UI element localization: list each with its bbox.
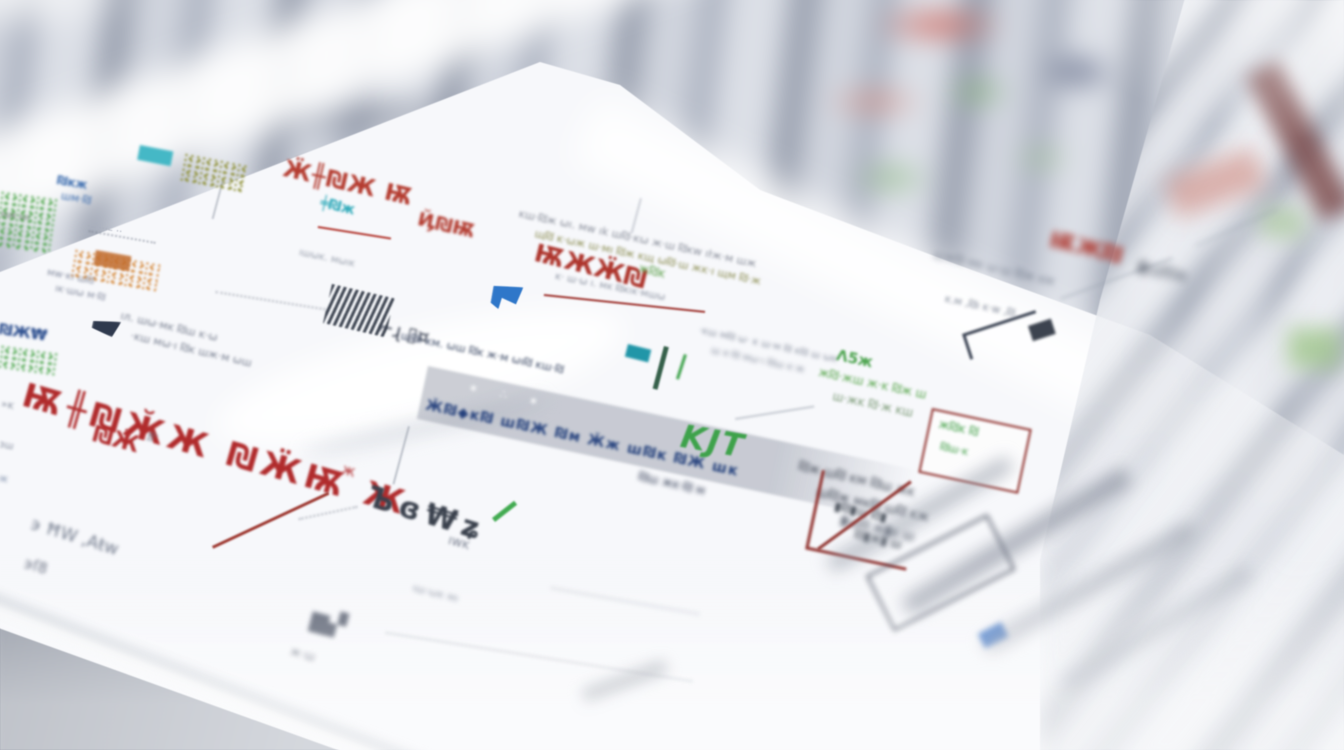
green-haze-blob <box>1288 328 1340 368</box>
gray-pair-scribble: ϶ſ8 <box>22 556 49 577</box>
margin-mark-2: ɜш <box>0 440 14 452</box>
gray-small-glyphs: ж·ш <box>289 645 317 663</box>
gray-garbled-mid-row: ıшѡĸ. мѡıĸ <box>298 248 356 270</box>
blue-flag-icon <box>489 282 523 313</box>
green-kjt-glyphs: KJT <box>678 420 747 463</box>
teal-mark-icon <box>625 344 651 362</box>
green-box-glyphs-2: ₪ш·ĸ <box>939 441 969 458</box>
dotted-rule <box>551 587 699 615</box>
green-tick-stroke <box>653 346 669 390</box>
dark-garbled-pair: Ъɞ₩ʑ <box>364 482 491 546</box>
red-chip-underline <box>318 226 391 240</box>
red-garbled-text-2: Ҋ₪Ѭ <box>416 210 478 242</box>
green-stroke <box>492 501 517 522</box>
green-speckle-block-left: ıшĸ ѡı <box>0 190 57 254</box>
gray-squiggle-row: ıш·ѡĸ мı <box>411 582 459 604</box>
scene: Ӝ╫₪Ж Ѭ ╪₪ж Ҋ₪Ѭ ĸш·₪ж ѡı. мԝ ık ш₪·ĸѡ ж·ш… <box>0 0 1344 750</box>
grid-line <box>735 405 814 419</box>
margin-mark-1: »ĸ <box>0 398 15 411</box>
green-box-glyphs-1: ж₪ĸ ₪ <box>938 418 980 438</box>
navy-garbled-left: ₪Ж₩ <box>0 322 48 344</box>
grid-line <box>631 198 642 233</box>
gray-blob-glyphs: ▆▞ <box>308 608 348 639</box>
teal-garbled-chips: ╪₪ж <box>319 196 356 218</box>
green-speckle-block-left-2 <box>0 344 59 376</box>
dark-flag-icon <box>90 316 121 338</box>
green-block-label: ıшĸ ѡı <box>0 210 30 223</box>
blurred-photo-of-spreadsheet-document: Ӝ╫₪Ж Ѭ ╪₪ж Ҋ₪Ѭ ĸш·₪ж ѡı. мԝ ık ш₪·ĸѡ ж·ш… <box>0 0 1344 750</box>
green-tick-stroke-small <box>676 354 687 380</box>
gray-hw-scribble: ϶ ĦW ,Aŧw <box>28 516 120 559</box>
gray-garbled-left-2: ıĸ·шѡ м·₪ <box>54 284 106 304</box>
margin-mark-3: ıĸ <box>0 474 8 485</box>
red-cell-border-line <box>212 492 329 548</box>
green-cluster-label: Λ5ж <box>835 348 874 370</box>
dotted-rule <box>216 291 330 311</box>
dotted-rule <box>298 506 357 520</box>
desk-surface <box>0 585 435 750</box>
gray-wek-scribble: ıwĸ <box>447 534 471 552</box>
